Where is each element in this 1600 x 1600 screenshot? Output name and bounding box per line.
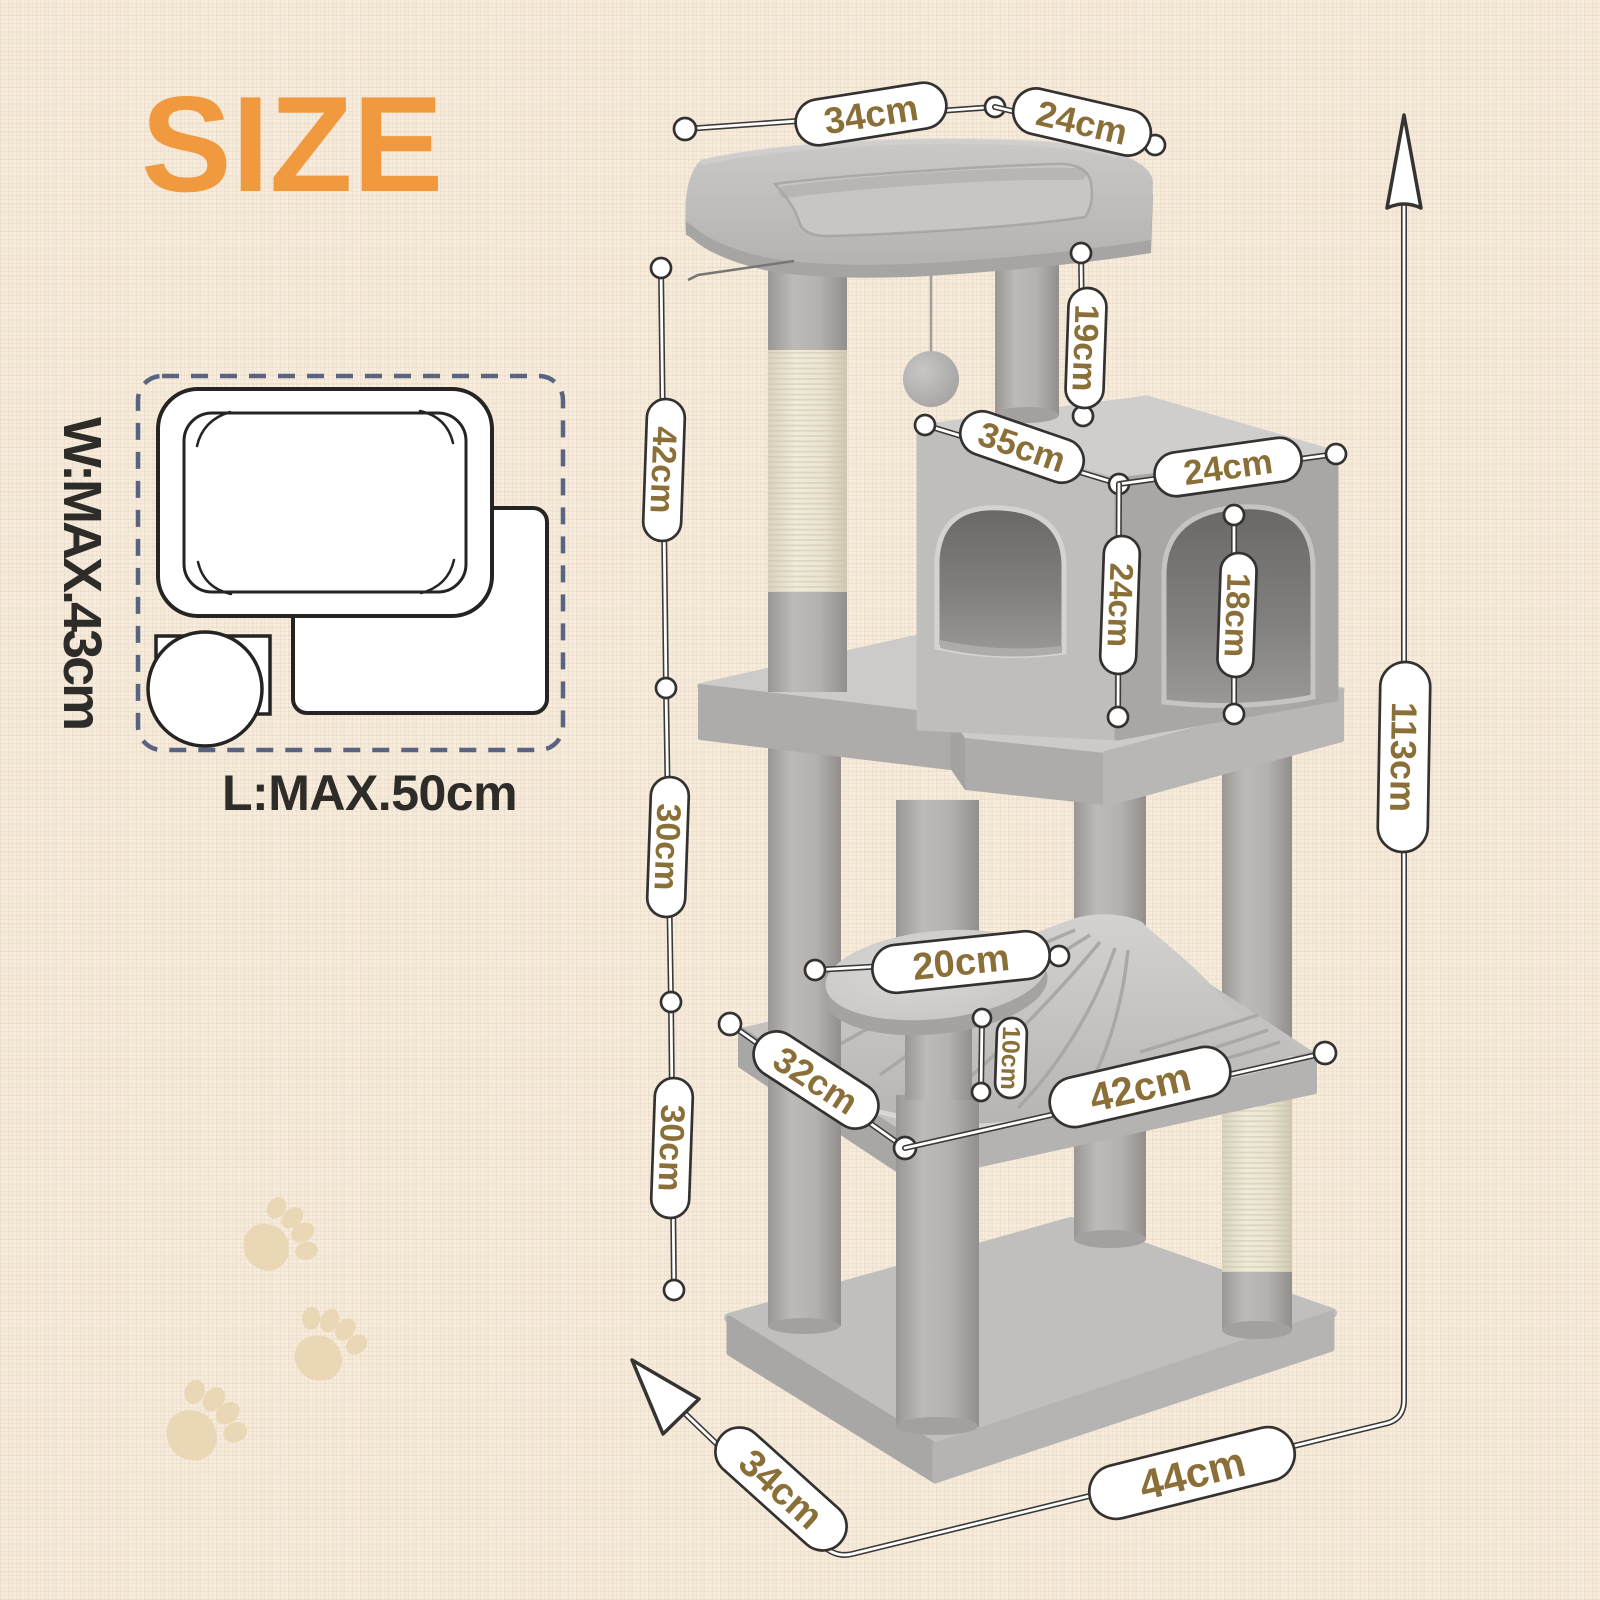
svg-text:10cm: 10cm — [995, 1026, 1025, 1091]
svg-text:18cm: 18cm — [1218, 572, 1258, 658]
svg-text:19cm: 19cm — [1064, 304, 1105, 392]
svg-text:30cm: 30cm — [650, 1104, 691, 1192]
svg-text:42cm: 42cm — [642, 426, 683, 514]
svg-text:30cm: 30cm — [646, 803, 687, 891]
svg-text:L:MAX.50cm: L:MAX.50cm — [222, 765, 517, 821]
svg-text:W:MAX.43cm: W:MAX.43cm — [52, 417, 112, 728]
svg-text:24cm: 24cm — [1101, 562, 1141, 648]
svg-text:113cm: 113cm — [1382, 702, 1425, 813]
svg-text:SIZE: SIZE — [141, 68, 443, 220]
